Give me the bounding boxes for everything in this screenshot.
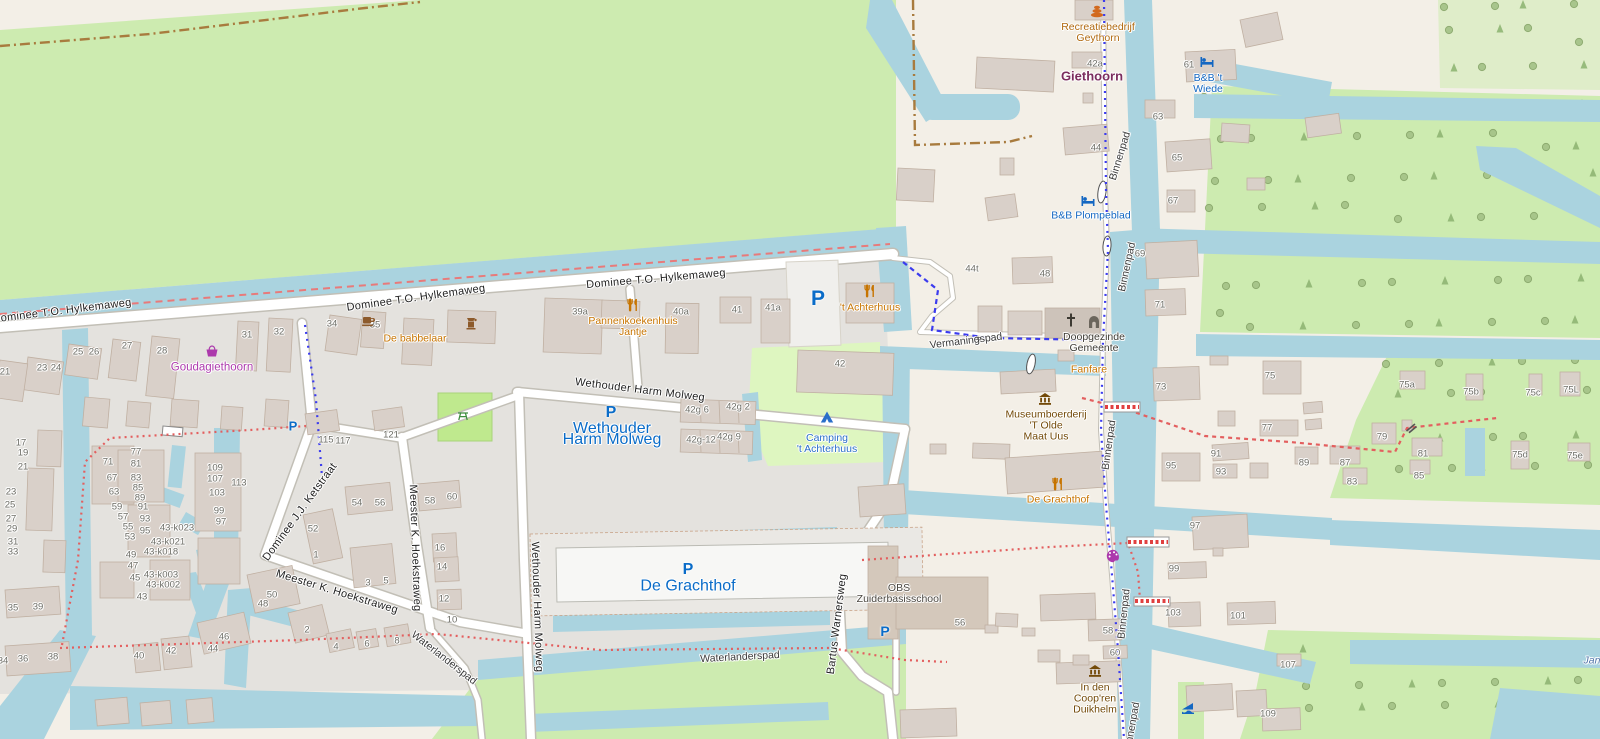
map-canvas[interactable]: Dominee T.O. HylkemawegDominee T.O. Hylk…: [0, 0, 1600, 739]
map-tiles: [0, 0, 1600, 739]
